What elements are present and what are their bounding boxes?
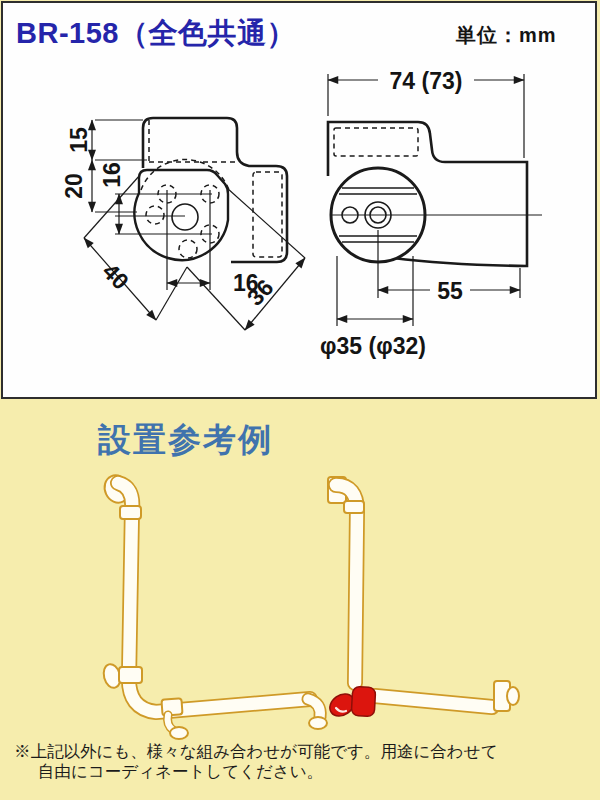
front-view-drawing: 15 20 16 16 40 36: [55, 90, 311, 342]
joint-collar: [344, 501, 364, 513]
unit-label: 単位：mm: [456, 22, 557, 49]
hidden-tube-end: [334, 128, 418, 156]
end-cap: [507, 687, 519, 705]
footnote-line-2: 自由にコーディネートしてください。: [14, 762, 586, 782]
side-view-drawing: 74 (73) 55 φ35 (φ32): [298, 58, 590, 366]
joint-collar: [120, 506, 141, 519]
section-title: 設置参考例: [98, 418, 273, 463]
catalog-page: BR-158（全色共通） 単位：mm: [0, 0, 600, 800]
dim-16v: 16: [99, 162, 125, 188]
dim-15: 15: [66, 127, 92, 153]
corner-joint-highlight: [326, 686, 376, 720]
mounting-plate: [135, 170, 228, 260]
joint-collar: [119, 667, 142, 683]
left-handrail: [100, 471, 327, 739]
dim-55: 55: [437, 278, 463, 304]
ext-line: [156, 267, 187, 320]
footnote-line-1: ※上記以外にも、様々な組み合わせが可能です。用途に合わせて: [14, 742, 586, 762]
dim-20: 20: [61, 173, 87, 199]
end-cap: [309, 717, 327, 729]
dim-diameter: φ35 (φ32): [320, 333, 426, 359]
ext-line: [227, 188, 305, 258]
installation-illustration: [60, 465, 540, 755]
end-cap: [170, 727, 188, 739]
footnote: ※上記以外にも、様々な組み合わせが可能です。用途に合わせて 自由にコーディネート…: [14, 742, 586, 782]
right-handrail: [326, 477, 519, 721]
product-code: BR-158（全色共通）: [16, 14, 296, 54]
dim-74: 74 (73): [390, 68, 463, 94]
